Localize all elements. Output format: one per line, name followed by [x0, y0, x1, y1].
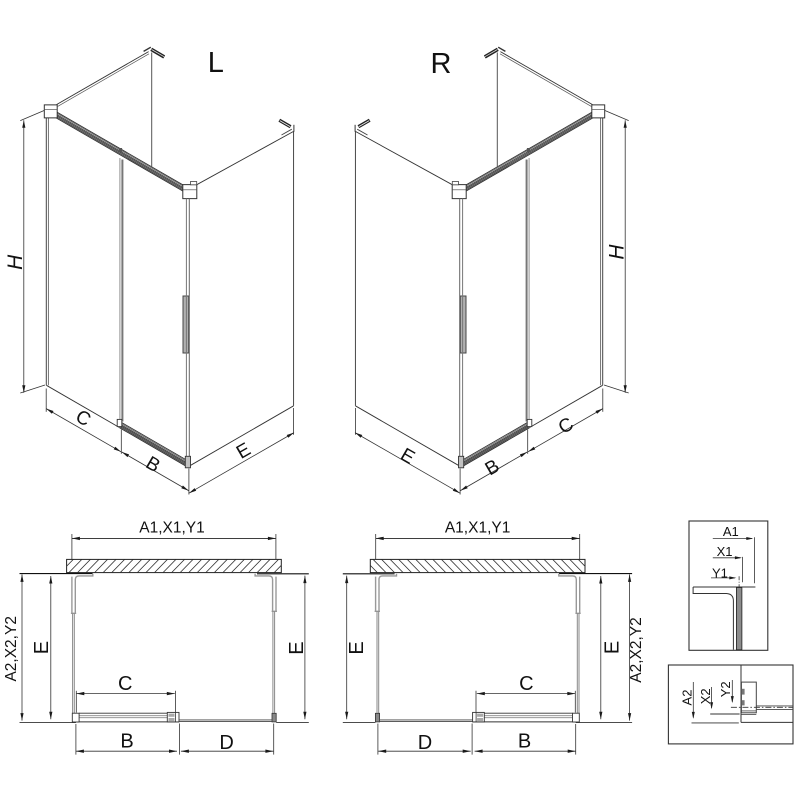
svg-text:B: B	[120, 730, 133, 752]
svg-text:H: H	[4, 254, 27, 270]
svg-text:A1,X1,Y1: A1,X1,Y1	[139, 519, 205, 536]
svg-text:A1: A1	[723, 524, 739, 539]
svg-text:X1: X1	[717, 544, 733, 559]
svg-text:D: D	[219, 732, 233, 754]
svg-text:E: E	[286, 641, 308, 654]
svg-text:A1,X1,Y1: A1,X1,Y1	[445, 520, 511, 537]
svg-text:E: E	[346, 641, 368, 654]
svg-text:L: L	[208, 47, 224, 79]
svg-text:R: R	[431, 48, 452, 80]
svg-text:E: E	[31, 641, 53, 654]
svg-text:H: H	[605, 244, 628, 260]
svg-text:A2: A2	[680, 690, 695, 706]
svg-text:A2,X2,Y2: A2,X2,Y2	[3, 616, 20, 682]
svg-text:E: E	[601, 641, 623, 654]
svg-text:X2: X2	[698, 688, 713, 704]
svg-text:D: D	[418, 732, 432, 754]
svg-text:A2,X2,Y2: A2,X2,Y2	[628, 617, 645, 683]
svg-text:B: B	[518, 730, 531, 752]
svg-text:C: C	[118, 673, 132, 695]
svg-text:C: C	[519, 673, 533, 695]
svg-text:Y2: Y2	[718, 681, 733, 697]
